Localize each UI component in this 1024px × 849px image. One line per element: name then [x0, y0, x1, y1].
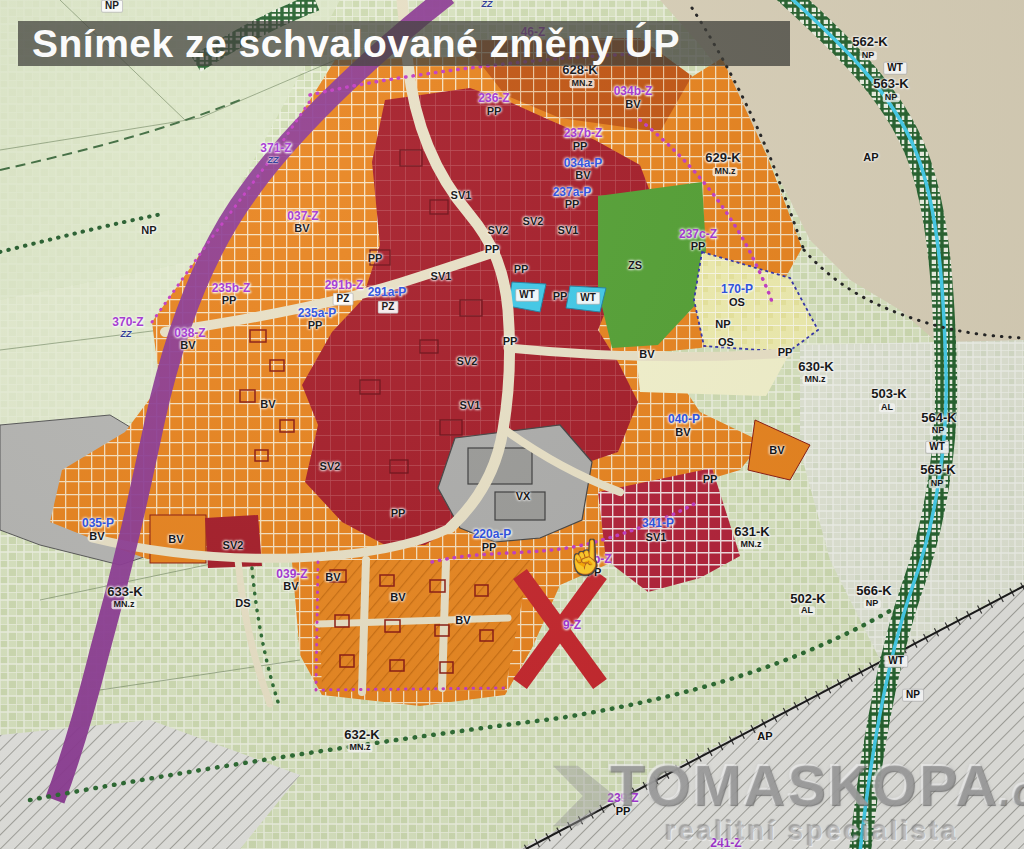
zoning-map[interactable]: NPZZ46-Z628-KMN.z562-KNPWT563-KNP629-KMN…: [0, 0, 1024, 849]
title-banner: Snímek ze schvalované změny ÚP: [18, 21, 790, 66]
pointing-hand-cursor-icon: ☝: [566, 538, 606, 576]
zone-wt-pond: [566, 286, 606, 312]
zone-wt-pond: [508, 282, 546, 312]
page-title: Snímek ze schvalované změny ÚP: [32, 22, 680, 65]
x-mark-annotation: [512, 568, 608, 690]
zoning-map-canvas: [0, 0, 1024, 849]
